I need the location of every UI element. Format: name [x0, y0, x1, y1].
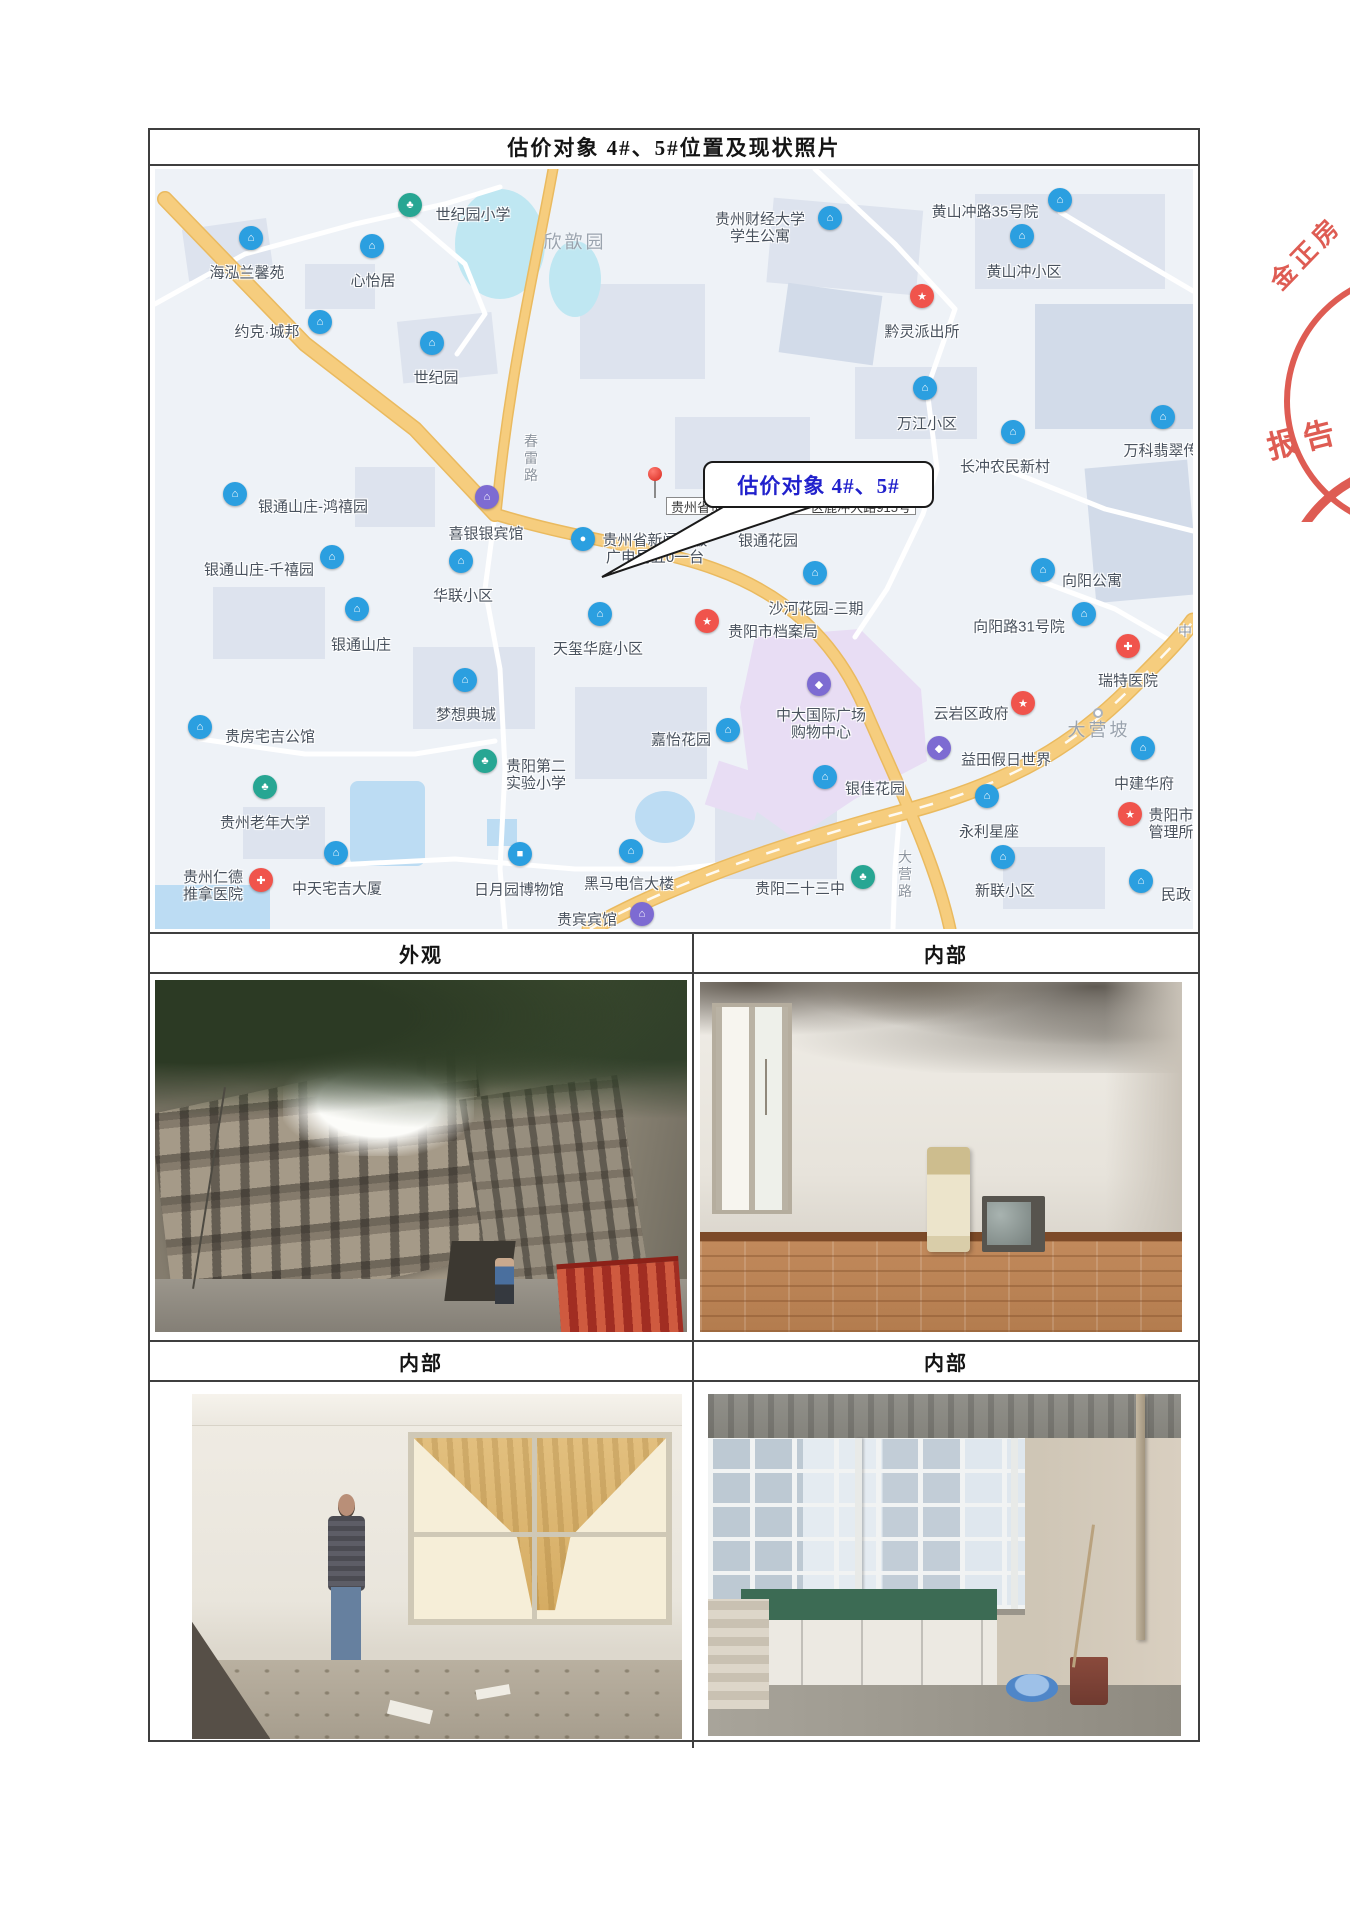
concrete-floor	[192, 1660, 682, 1739]
seal-text-top: 金正房	[1261, 207, 1349, 297]
map-poi-label: 世纪园小学	[435, 208, 510, 225]
target-location-pin-icon	[654, 479, 656, 498]
map-pin-icon: ⌂	[320, 545, 344, 569]
map-pin-icon: ★	[1011, 691, 1035, 715]
map-poi-label: 黑马电信大楼	[584, 877, 674, 894]
map-poi-label: 云岩区政府	[933, 707, 1008, 724]
draped-curtain	[414, 1438, 667, 1619]
map-pin-icon: ★	[1118, 802, 1142, 826]
wood-floor	[700, 1238, 1182, 1333]
map-poi-layer: ♣世纪园小学⌂海泓兰馨苑⌂心怡居⌂约克·城邦⌂世纪园⌂贵州财经大学学生公寓⌂黄山…	[155, 169, 1193, 929]
map-pin-icon: ⌂	[913, 376, 937, 400]
page-title: 估价对象 4#、5#位置及现状照片	[150, 130, 1198, 166]
map-poi-label: 贵阳市管理所	[1148, 808, 1193, 842]
map-pin-icon: ⌂	[1031, 558, 1055, 582]
map-pin-icon: ★	[910, 284, 934, 308]
map-poi-label: 海泓兰馨苑	[209, 266, 284, 283]
map-pin-icon: ⌂	[345, 597, 369, 621]
map-pin-icon: ⌂	[239, 226, 263, 250]
wall-shading	[1105, 982, 1182, 1255]
map-pin-icon: ◆	[927, 736, 951, 760]
map-road-label: 中	[1178, 621, 1192, 641]
map-pin-icon: ⌂	[420, 331, 444, 355]
map-row: ♣世纪园小学⌂海泓兰馨苑⌂心怡居⌂约克·城邦⌂世纪园⌂贵州财经大学学生公寓⌂黄山…	[150, 166, 1198, 932]
map-poi-label: 黄山冲路35号院	[932, 205, 1039, 222]
map-poi-label: 贵州省新闻出版广电局五0一台	[602, 533, 707, 567]
map-pin-icon: ⌂	[475, 485, 499, 509]
map-poi-label: 天玺华庭小区	[553, 642, 643, 659]
map-poi-label: 银通山庄-千禧园	[204, 563, 314, 580]
window-mullion	[532, 1438, 537, 1619]
target-callout: 估价对象 4#、5#	[703, 461, 934, 508]
map-poi-label: 银通山庄	[331, 638, 391, 655]
map-poi-label: 梦想典城	[436, 708, 496, 725]
map-pin-icon: ⌂	[188, 715, 212, 739]
photo-row-1	[150, 974, 1198, 1340]
map-poi-label: 贵州财经大学学生公寓	[715, 212, 805, 246]
map-poi-label: 喜银银宾馆	[448, 527, 523, 544]
map-pin-icon: ⌂	[619, 839, 643, 863]
red-seal-partial: 金正房 报告	[1258, 192, 1350, 522]
photo-exterior	[155, 980, 687, 1332]
map-poi-label: 沙河花园-三期	[769, 602, 864, 619]
map-pin-icon: ●	[571, 527, 595, 551]
photo-cell	[694, 1382, 1198, 1748]
map-pin-icon: ⌂	[1151, 405, 1175, 429]
map-pin-icon: ⌂	[1129, 869, 1153, 893]
tree-canopy	[155, 980, 687, 1135]
map-poi-label: 世纪园	[413, 371, 458, 388]
map-poi-label: 中大国际广场购物中心	[776, 708, 866, 742]
map-poi-label: 银通花园	[738, 534, 798, 551]
green-top-cabinet	[741, 1589, 996, 1685]
stacked-fabric	[708, 1599, 769, 1708]
window	[712, 1003, 792, 1214]
appraisal-photo-table: 估价对象 4#、5#位置及现状照片	[148, 128, 1200, 1742]
map-poi-label: 嘉怡花园	[651, 733, 711, 750]
map-pin-icon: ◆	[807, 672, 831, 696]
location-map: ♣世纪园小学⌂海泓兰馨苑⌂心怡居⌂约克·城邦⌂世纪园⌂贵州财经大学学生公寓⌂黄山…	[155, 169, 1193, 929]
map-poi-label: 贵宾宾馆	[557, 913, 617, 929]
map-poi-label: 贵阳二十三中	[755, 882, 845, 899]
map-pin-icon: ⌂	[991, 845, 1015, 869]
red-cart	[557, 1256, 685, 1332]
map-pin-icon: ⌂	[324, 841, 348, 865]
map-poi-label: 中天宅吉大厦	[292, 882, 382, 899]
mop-handle	[1072, 1524, 1095, 1667]
photo-interior-3	[708, 1394, 1181, 1736]
map-poi-label: 日月园博物馆	[474, 883, 564, 900]
map-poi-label: 银佳花园	[845, 782, 905, 799]
header-interior-1: 内部	[694, 934, 1198, 972]
map-poi-label: 益田假日世界	[961, 753, 1051, 770]
map-area-label: 欣歆园	[544, 228, 607, 254]
photo-interior-2	[192, 1394, 682, 1739]
person-jeans	[331, 1587, 361, 1669]
map-pin-icon: ⌂	[223, 482, 247, 506]
map-pin-icon: ♣	[851, 865, 875, 889]
map-pin-icon: ⌂	[975, 784, 999, 808]
mop-bucket	[1070, 1657, 1108, 1705]
person-figure	[495, 1258, 513, 1304]
map-pin-icon: ✚	[249, 868, 273, 892]
wall-pipe	[1136, 1394, 1145, 1640]
map-pin-icon: ♣	[398, 193, 422, 217]
map-poi-label: 贵州老年大学	[220, 816, 310, 833]
map-pin-icon: ⌂	[588, 602, 612, 626]
map-poi-label: 华联小区	[433, 589, 493, 606]
photo-cell	[150, 1382, 694, 1748]
map-poi-label: 万江小区	[897, 417, 957, 434]
ceiling	[192, 1394, 682, 1426]
water-dispenser	[927, 1147, 970, 1252]
map-pin-icon: ★	[695, 609, 719, 633]
photo-header-row-1: 外观 内部	[150, 932, 1198, 974]
map-pin-icon: ⌂	[1048, 188, 1072, 212]
photo-row-2	[150, 1382, 1198, 1748]
map-pin-icon: ⌂	[1010, 224, 1034, 248]
map-poi-label: 中建华府	[1114, 777, 1174, 794]
map-pin-icon: ⌂	[1001, 420, 1025, 444]
blue-basin	[1006, 1674, 1058, 1701]
map-pin-icon: ⌂	[630, 902, 654, 926]
map-poi-label: 黔灵派出所	[884, 325, 959, 342]
map-poi-label: 贵阳市档案局	[728, 625, 818, 642]
map-pin-icon: ♣	[473, 749, 497, 773]
window	[408, 1432, 673, 1625]
map-pin-icon: ⌂	[449, 549, 473, 573]
floor	[708, 1685, 1181, 1736]
map-pin-icon: ⌂	[1131, 736, 1155, 760]
map-poi-label: 银通山庄-鸿禧园	[258, 500, 368, 517]
photo-cell	[694, 974, 1198, 1340]
hanging-cord	[765, 1059, 767, 1115]
map-poi-label: 新联小区	[975, 884, 1035, 901]
header-interior-2: 内部	[150, 1342, 694, 1380]
map-poi-label: 万科翡翠传	[1123, 444, 1193, 461]
person-head	[338, 1494, 356, 1518]
map-pin-icon: ⌂	[360, 234, 384, 258]
map-poi-label: 向阳公寓	[1062, 574, 1122, 591]
map-poi-label: 民政	[1161, 888, 1191, 905]
window-frame	[855, 1438, 862, 1609]
map-pin-icon: ⌂	[716, 718, 740, 742]
map-pin-icon: ✚	[1116, 634, 1140, 658]
window-mullion	[414, 1532, 667, 1537]
map-poi-label: 永利星座	[959, 825, 1019, 842]
window-frame	[1011, 1438, 1018, 1609]
map-poi-label: 贵房宅吉公馆	[225, 730, 315, 747]
person-shirt	[328, 1516, 365, 1591]
map-pin-icon: ⌂	[308, 310, 332, 334]
old-tv	[982, 1196, 1045, 1252]
map-poi-label: 心怡居	[350, 274, 395, 291]
map-poi-label: 约克·城邦	[235, 325, 300, 342]
map-pin-icon: ⌂	[1072, 602, 1096, 626]
map-pin-icon: ⌂	[818, 206, 842, 230]
map-road-label: 大营路	[895, 850, 915, 901]
header-interior-3: 内部	[694, 1342, 1198, 1380]
map-poi-label: 瑞特医院	[1098, 674, 1158, 691]
map-pin-icon: ⌂	[453, 668, 477, 692]
photo-interior-1	[700, 982, 1182, 1332]
map-area-label: 大营坡	[1068, 716, 1131, 742]
map-poi-label: 贵州仁德推拿医院	[183, 870, 243, 904]
concrete-beam	[708, 1394, 1181, 1438]
header-exterior: 外观	[150, 934, 694, 972]
photo-header-row-2: 内部 内部	[150, 1340, 1198, 1382]
person-figure	[324, 1494, 368, 1680]
map-pin-icon: ⌂	[813, 765, 837, 789]
map-pin-icon: ♣	[253, 775, 277, 799]
map-poi-label: 长冲农民新村	[960, 460, 1050, 477]
map-pin-icon: ■	[508, 842, 532, 866]
map-road-label: 春雷路	[521, 434, 541, 485]
map-poi-label: 贵阳第二实验小学	[506, 759, 566, 793]
document-page: 估价对象 4#、5#位置及现状照片	[0, 0, 1350, 1909]
map-pin-icon: ⌂	[803, 561, 827, 585]
map-poi-label: 向阳路31号院	[973, 620, 1065, 637]
map-poi-label: 黄山冲小区	[986, 265, 1061, 282]
photo-cell	[150, 974, 694, 1340]
